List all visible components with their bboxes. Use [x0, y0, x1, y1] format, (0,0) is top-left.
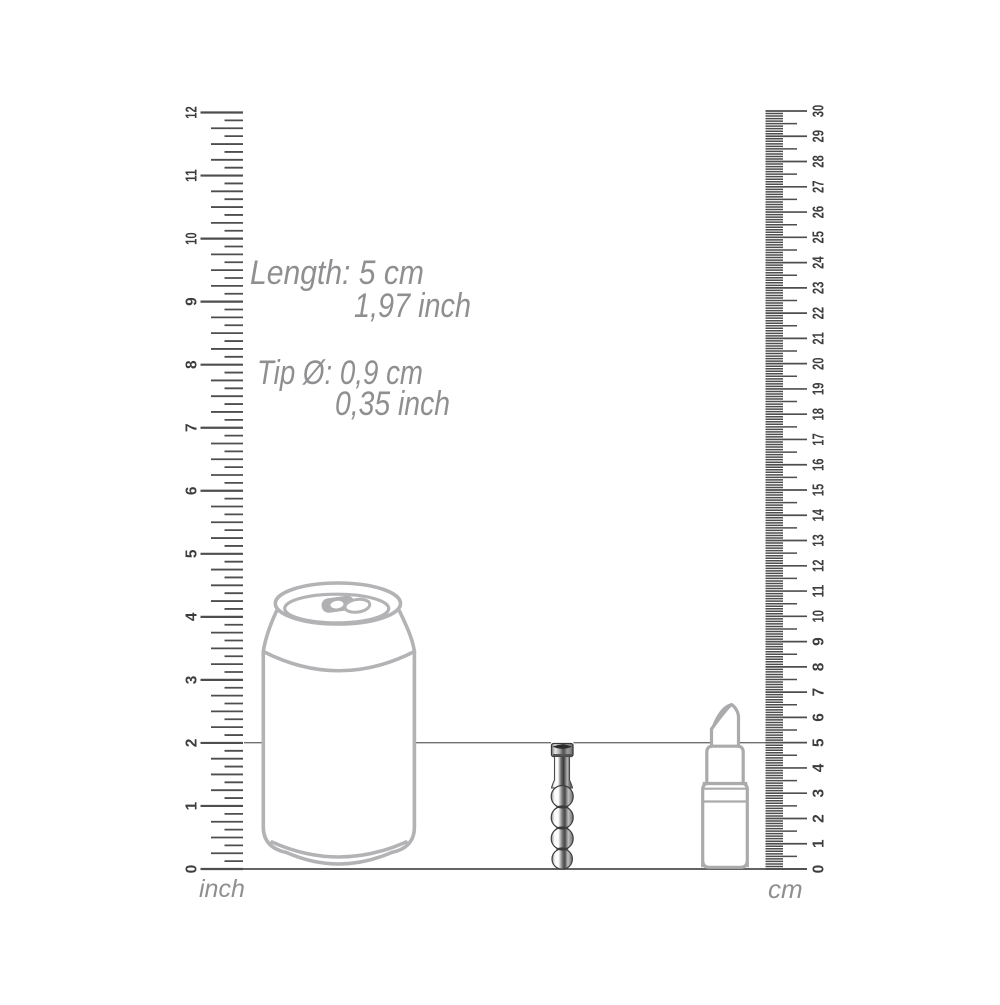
- svg-text:12: 12: [184, 106, 201, 119]
- svg-text:inch: inch: [199, 875, 245, 903]
- svg-text:6: 6: [184, 486, 201, 495]
- svg-text:23: 23: [811, 281, 828, 294]
- svg-text:13: 13: [811, 534, 828, 547]
- svg-text:18: 18: [811, 408, 828, 421]
- svg-text:26: 26: [811, 206, 828, 219]
- svg-text:9: 9: [811, 637, 828, 646]
- svg-text:2: 2: [811, 814, 828, 823]
- svg-text:7: 7: [811, 688, 828, 697]
- svg-text:10: 10: [811, 610, 828, 623]
- svg-text:0: 0: [184, 865, 201, 874]
- svg-text:1: 1: [811, 839, 828, 848]
- svg-text:21: 21: [811, 332, 828, 345]
- svg-text:15: 15: [811, 483, 828, 496]
- svg-text:17: 17: [811, 433, 828, 446]
- svg-text:28: 28: [811, 155, 828, 168]
- svg-text:1: 1: [184, 801, 201, 810]
- svg-text:4: 4: [184, 612, 201, 621]
- svg-text:0,35 inch: 0,35 inch: [335, 385, 450, 423]
- svg-text:24: 24: [811, 256, 828, 269]
- svg-text:cm: cm: [768, 874, 803, 904]
- svg-text:29: 29: [811, 130, 828, 143]
- svg-text:4: 4: [811, 763, 828, 772]
- svg-text:12: 12: [811, 560, 828, 573]
- svg-text:9: 9: [184, 297, 201, 306]
- svg-text:2: 2: [184, 739, 201, 748]
- svg-text:7: 7: [184, 423, 201, 432]
- svg-text:3: 3: [811, 789, 828, 798]
- svg-text:30: 30: [811, 105, 828, 118]
- svg-text:11: 11: [811, 585, 828, 598]
- svg-text:1,97 inch: 1,97 inch: [354, 287, 471, 325]
- svg-text:5: 5: [811, 738, 828, 747]
- svg-text:10: 10: [184, 232, 201, 245]
- svg-text:0: 0: [811, 865, 828, 874]
- svg-text:6: 6: [811, 713, 828, 722]
- svg-text:14: 14: [811, 509, 828, 522]
- svg-text:5: 5: [184, 549, 201, 558]
- svg-text:22: 22: [811, 307, 828, 320]
- svg-text:11: 11: [184, 169, 201, 182]
- svg-text:27: 27: [811, 181, 828, 194]
- svg-text:19: 19: [811, 382, 828, 395]
- svg-text:8: 8: [811, 662, 828, 671]
- svg-text:25: 25: [811, 231, 828, 244]
- svg-text:3: 3: [184, 675, 201, 684]
- svg-text:16: 16: [811, 458, 828, 471]
- svg-text:8: 8: [184, 360, 201, 369]
- svg-text:20: 20: [811, 357, 828, 370]
